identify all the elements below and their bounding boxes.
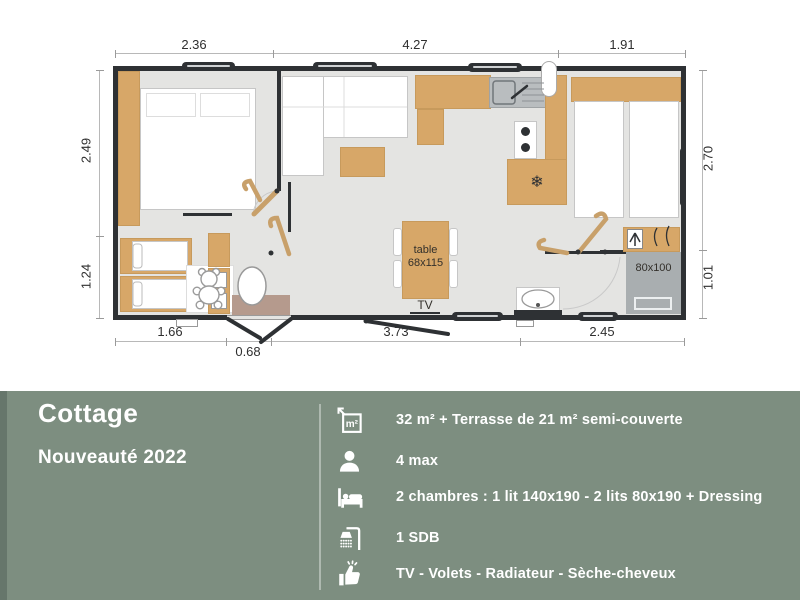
towel xyxy=(667,226,670,246)
area-icon: m² xyxy=(334,405,365,435)
door-arc xyxy=(563,257,620,309)
sink-bowl xyxy=(493,81,515,104)
floor-plan: 2.36 4.27 1.91 1.66 0.68 3.73 2.45 2.49 … xyxy=(0,0,800,391)
wardrobe-door-leaf xyxy=(539,240,567,253)
spec-row-equipment: TV - Volets - Radiateur - Sèche-cheveux xyxy=(334,558,794,590)
cottage-subtitle: Nouveauté 2022 xyxy=(38,447,187,469)
toilet xyxy=(238,267,266,305)
spec-row-bedrooms: 2 chambres : 1 lit 140x190 - 2 lits 80x1… xyxy=(334,481,794,513)
panel-left-strip xyxy=(0,391,7,600)
spec-text-equipment: TV - Volets - Radiateur - Sèche-cheveux xyxy=(396,566,676,582)
spec-text-bathroom: 1 SDB xyxy=(396,530,440,546)
door-hinge xyxy=(364,319,369,324)
shower-icon xyxy=(334,523,365,553)
plan-detail-overlay xyxy=(0,0,800,391)
door-hinge xyxy=(269,251,274,256)
teddy-bear xyxy=(193,269,225,309)
spec-row-bathroom: 1 SDB xyxy=(334,522,794,554)
cottage-title: Cottage xyxy=(38,398,138,429)
wardrobe-door-leaf xyxy=(244,181,260,200)
entrance-door-leaf xyxy=(261,319,291,342)
spec-text-area: 32 m² + Terrasse de 21 m² semi-couverte xyxy=(396,412,683,428)
wardrobe-door-leaf xyxy=(579,214,606,252)
thumbs-up-icon xyxy=(334,559,365,589)
vanity-faucet xyxy=(536,303,540,307)
spec-text-capacity: 4 max xyxy=(396,453,438,469)
terrace-door-leaf xyxy=(366,321,448,334)
entrance-door-leaf xyxy=(228,319,260,338)
kids-pillow xyxy=(133,244,142,268)
door-hinge xyxy=(576,250,581,255)
door-hinge xyxy=(603,250,608,255)
spec-row-capacity: 4 max xyxy=(334,445,794,477)
bed-icon xyxy=(334,482,365,512)
shower-mixer xyxy=(630,233,640,246)
cottage-card: 2.36 4.27 1.91 1.66 0.68 3.73 2.45 2.49 … xyxy=(0,0,800,600)
door-hinge xyxy=(275,189,280,194)
person-icon xyxy=(334,446,365,476)
towel xyxy=(655,228,658,246)
wardrobe-door-leaf xyxy=(270,218,289,254)
spec-row-area: m² 32 m² + Terrasse de 21 m² semi-couver… xyxy=(334,404,794,436)
spec-text-bedrooms: 2 chambres : 1 lit 140x190 - 2 lits 80x1… xyxy=(396,489,762,505)
kids-pillow xyxy=(133,282,142,306)
svg-text:m²: m² xyxy=(345,419,358,430)
panel-divider xyxy=(319,404,321,590)
